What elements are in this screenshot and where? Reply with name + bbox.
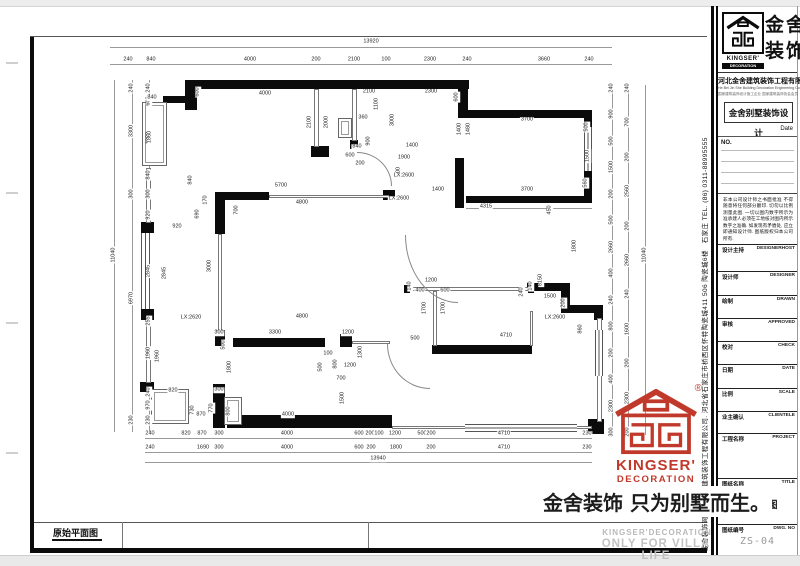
dim-label: 450	[547, 204, 553, 215]
dim-label: 1700	[441, 301, 447, 315]
stamp-en-sub: DECORATION	[610, 474, 702, 485]
dim-label: 800	[333, 358, 339, 369]
titleblock-divider	[718, 433, 797, 434]
dim-label: 600	[195, 86, 201, 97]
dim-label: 600	[439, 288, 450, 294]
titleblock-divider	[718, 295, 797, 296]
dim-label: 240	[625, 288, 631, 299]
row-label-cn: 设计师	[722, 273, 739, 281]
dim-label: 230	[581, 445, 592, 451]
dim-label: 240	[146, 82, 152, 93]
bay-window	[151, 389, 189, 424]
dim-label: 230	[129, 414, 135, 425]
dim-label: 2660	[609, 240, 615, 254]
dim-label: 4800	[295, 200, 309, 206]
row-label-en: PROJECT	[772, 435, 795, 440]
window-symbol	[465, 424, 577, 432]
dim-label: 500	[584, 121, 590, 132]
dim-label: 240	[122, 57, 133, 63]
dim-label: 1400	[405, 143, 419, 149]
dim-label: 13940	[369, 456, 386, 462]
dim-label: 820	[180, 431, 191, 437]
dim-label: 800	[609, 320, 615, 331]
titleblock-row-check: 校对 CHECK	[720, 343, 796, 352]
dim-label: 240	[625, 82, 631, 93]
titleblock-divider	[718, 478, 797, 479]
dim-label: 920	[146, 209, 152, 220]
dim-label: 4000	[243, 57, 257, 63]
row-label-en: DESIGNERHOST	[757, 246, 795, 251]
dim-label: 240	[146, 386, 152, 397]
titleblock-row-dwg-no: 图纸编号 DWG. NO	[720, 526, 796, 535]
dim-label: 100	[322, 351, 333, 357]
company-name-en: He Bei Jin She Building Decoration Engin…	[718, 86, 797, 90]
dim-label: 3700	[520, 117, 534, 123]
dim-label: 870	[195, 412, 206, 418]
titleblock-row-designer: 设计师 DESIGNER	[720, 273, 796, 282]
logo-box	[722, 12, 764, 54]
dim-label: 170	[203, 194, 209, 205]
logo-en-name: KINGSER'	[722, 56, 764, 62]
dim-label: 2300	[423, 57, 437, 63]
row-label-cn: 图纸编号	[722, 526, 744, 534]
dim-label: 200	[310, 57, 321, 63]
titleblock-divider	[718, 388, 797, 389]
dim-label: 230	[146, 414, 152, 425]
dim-label: 230	[581, 431, 592, 437]
dim-label: 1960	[146, 346, 152, 360]
disclaimer-text: 非本公司设计师之书面批准 不得随意将任何部分翻印. 切勿以比例测量此图. 一切以…	[723, 197, 793, 242]
dim-label: 255	[146, 315, 152, 326]
company-name-cn: 河北金舍建筑装饰工程有限公司	[718, 76, 797, 86]
fixture	[338, 118, 352, 138]
dim-label: 4000	[280, 445, 294, 451]
dim-label: 300	[213, 431, 224, 437]
dim-label: 1800	[389, 445, 403, 451]
dim-label: 500	[221, 339, 227, 350]
dim-label: 820	[167, 388, 178, 394]
dim-label: 1860	[147, 130, 153, 144]
dim-label: 970	[146, 399, 152, 410]
dim-label: 200	[425, 431, 436, 437]
dim-label: 6970	[129, 291, 135, 305]
dim-label: 770	[209, 402, 215, 413]
dim-label: 840	[188, 174, 194, 185]
dim-label: 860	[578, 323, 584, 334]
dim-label: 4000	[280, 431, 294, 437]
dim-label: 2000	[324, 115, 330, 129]
row-label-en: DESIGNER	[770, 273, 795, 278]
dim-label: 300	[213, 445, 224, 451]
project-title-box: 金舍别墅装饰设计	[724, 102, 793, 123]
dim-label: 700	[625, 116, 631, 127]
dim-label: 200	[625, 220, 631, 231]
kingser-logo-icon	[725, 15, 761, 49]
dim-label: 1500	[585, 149, 591, 163]
dim-label: 240	[144, 445, 155, 451]
dim-label: 840	[351, 144, 362, 150]
dim-label: 200	[561, 297, 567, 308]
ruled-line	[721, 161, 794, 162]
dim-label: 240	[583, 57, 594, 63]
dim-label: 240	[609, 82, 615, 93]
dim-label: 1480	[466, 122, 472, 136]
row-label-cn: 审核	[722, 320, 733, 328]
row-label-en: DWG. NO	[773, 526, 795, 531]
dim-label: 2100	[347, 57, 361, 63]
row-label-cn: 工程名称	[722, 435, 744, 443]
titleblock-divider	[718, 72, 797, 73]
dim-label: 700	[335, 376, 346, 382]
slogan-cn: 金舍装饰 只为别墅而生。	[541, 486, 772, 517]
dim-label: 5700	[274, 183, 288, 189]
window-symbol	[595, 330, 603, 376]
dim-label: 2560	[625, 184, 631, 198]
registered-mark-icon: ®	[695, 383, 702, 394]
dim-label: 11040	[111, 247, 117, 264]
dim-label: 560	[583, 177, 589, 188]
dim-label: 3660	[537, 57, 551, 63]
dim-label: 3700	[520, 187, 534, 193]
titleblock-row-project: 工程名称 PROJECT	[720, 435, 796, 444]
row-label-en: DRAWN	[777, 297, 795, 302]
titleblock-divider	[718, 411, 797, 412]
logo-en-sub: DECORATION	[722, 63, 764, 69]
dim-label: 1200	[388, 431, 402, 437]
dim-label: 840	[146, 169, 152, 180]
titleblock-divider	[718, 318, 797, 319]
dim-label: 8150	[538, 273, 544, 287]
titleblock-divider	[718, 524, 797, 525]
dim-label: 1400	[457, 122, 463, 136]
dim-label: 4000	[258, 91, 272, 97]
dim-label: 1960	[155, 349, 161, 363]
dim-label: 400	[414, 288, 425, 294]
drawing-sheet: 原始平面图	[0, 0, 800, 566]
dim-label: LX:2620	[180, 315, 203, 321]
dim-label: 1400	[431, 187, 445, 193]
dim-label: 200	[609, 347, 615, 358]
dim-label: LX:2600	[393, 173, 416, 179]
row-label-en: DATE	[782, 366, 795, 371]
dim-label: 240	[129, 82, 135, 93]
dim-label: 800	[226, 405, 232, 416]
dim-label: 1800	[227, 360, 233, 374]
dim-label: 870	[196, 431, 207, 437]
titleblock-row-date: 日期 DATE	[720, 366, 796, 375]
ruled-line	[721, 183, 794, 184]
row-label-cn: 日期	[722, 366, 733, 374]
dim-label: 100	[380, 57, 391, 63]
dim-label: 240	[144, 431, 155, 437]
dim-label: 4710	[499, 333, 513, 339]
dim-label: 200	[625, 151, 631, 162]
row-label-cn: 校对	[722, 343, 733, 351]
dim-label: 600	[344, 153, 355, 159]
dim-label: 2300	[424, 89, 438, 95]
row-label-cn: 设计主持	[722, 246, 744, 254]
row-label-cn: 绘制	[722, 297, 733, 305]
dim-label: 3300	[268, 330, 282, 336]
dim-label: 1200	[343, 363, 357, 369]
dim-label: 900	[609, 108, 615, 119]
dim-label: 1690	[196, 445, 210, 451]
dim-label: 1900	[397, 155, 411, 161]
dim-label: 2100	[362, 89, 376, 95]
company-stamp: ® KINGSER' DECORATION	[610, 383, 702, 493]
dim-label: 2845	[162, 266, 168, 280]
dim-label: 500	[409, 336, 420, 342]
dim-label: 700	[234, 204, 240, 215]
dim-label: 2100	[307, 115, 313, 129]
dim-label: 200	[365, 445, 376, 451]
dim-label: 500	[609, 135, 615, 146]
titleblock-divider	[718, 271, 797, 272]
dim-label: 920	[171, 224, 182, 230]
dim-label: 1500	[340, 391, 346, 405]
dim-label: 200	[354, 161, 365, 167]
dim-label: 900	[366, 135, 372, 146]
dim-label: 600	[353, 445, 364, 451]
dim-label: 240	[461, 57, 472, 63]
row-label-en: CHECK	[778, 343, 795, 348]
dim-label: 1200	[424, 278, 438, 284]
dim-label: 1500	[609, 160, 615, 174]
dim-label: 1300	[358, 345, 364, 359]
dim-label: 1200	[341, 330, 355, 336]
dim-label: 140	[528, 280, 534, 291]
dim-label: 2845	[146, 264, 152, 278]
dim-label: 840	[145, 57, 156, 63]
titleblock-row-drawn: 绘制 DRAWN	[720, 297, 796, 306]
dim-label: 100	[373, 431, 384, 437]
titleblock-row-approved: 审核 APPROVED	[720, 320, 796, 329]
dim-label: 4710	[497, 431, 511, 437]
row-label-cn: 比例	[722, 390, 733, 398]
row-label-en: TITLE	[782, 480, 795, 485]
titleblock-divider	[718, 244, 797, 245]
row-label-en: CLIENTELE	[768, 413, 795, 418]
titleblock-row-scale: 比例 SCALE	[720, 390, 796, 399]
dim-label: 690	[195, 208, 201, 219]
title-block: KINGSER' DECORATION 金舍装饰 河北金舍建筑装饰工程有限公司 …	[718, 6, 798, 555]
kingser-stamp-icon	[613, 389, 699, 455]
dim-label: 300	[213, 387, 224, 393]
dim-label: 4000	[281, 412, 295, 418]
stamp-en-name: KINGSER'	[610, 457, 702, 474]
titleblock-row-designer-host: 设计主持 DESIGNERHOST	[720, 246, 796, 255]
dim-label: 360	[357, 115, 368, 121]
titleblock-divider	[718, 364, 797, 365]
no-label: NO.	[721, 140, 732, 146]
row-label-en: APPROVED	[768, 320, 795, 325]
dim-label: 1500	[543, 294, 557, 300]
dim-label: 600	[353, 431, 364, 437]
dim-label: 500	[609, 214, 615, 225]
dim-label: 300	[129, 188, 135, 199]
ruled-line	[721, 172, 794, 173]
logo-cn-name: 金舍装饰	[765, 13, 800, 65]
titleblock-row-clientele: 业主确认 CLIENTELE	[720, 413, 796, 422]
dim-label: LX:2600	[388, 196, 411, 202]
dim-label: 1700	[422, 301, 428, 315]
titleblock-divider	[718, 136, 797, 137]
dim-label: 500	[318, 361, 324, 372]
dim-label: 200	[625, 357, 631, 368]
titleblock-divider	[718, 341, 797, 342]
dim-label: LX:2600	[544, 315, 567, 321]
dim-label: 200	[425, 445, 436, 451]
dim-label: 300	[146, 188, 152, 199]
dim-label: 840	[146, 95, 157, 101]
dim-label: 400	[609, 267, 615, 278]
dim-label: 1600	[625, 322, 631, 336]
dim-label: 200	[609, 188, 615, 199]
drawing-number: ZS-04	[718, 536, 797, 547]
slogan-en1: KINGSER'DECORATION	[598, 528, 716, 537]
dim-label: 4710	[497, 445, 511, 451]
dim-label: 140	[407, 280, 413, 291]
dim-label: 1100	[374, 97, 380, 111]
dim-label: 240	[519, 286, 525, 297]
dim-label: 11040	[642, 247, 648, 264]
dim-label: 2660	[625, 253, 631, 267]
dim-label: 240	[609, 294, 615, 305]
dim-label: 13920	[362, 39, 379, 45]
dim-label: 4315	[479, 204, 493, 210]
ruled-line	[721, 150, 794, 151]
company-sub: 国家建筑装饰设计施工企业 国家建筑装饰协会会员	[718, 92, 797, 97]
dim-label: 300	[213, 330, 224, 336]
titleblock-divider	[718, 193, 797, 194]
dim-label: 3000	[207, 259, 213, 273]
dim-label: 4800	[295, 314, 309, 320]
date-label: Date	[718, 126, 793, 132]
row-label-en: SCALE	[779, 390, 795, 395]
dim-label: 600	[454, 91, 460, 102]
dim-label: 1800	[572, 239, 578, 253]
dim-label: 3000	[390, 113, 396, 127]
slogan-en2: ONLY FOR VILLA LIFE	[592, 538, 720, 562]
dim-label: 3300	[129, 124, 135, 138]
row-label-cn: 业主确认	[722, 413, 744, 421]
